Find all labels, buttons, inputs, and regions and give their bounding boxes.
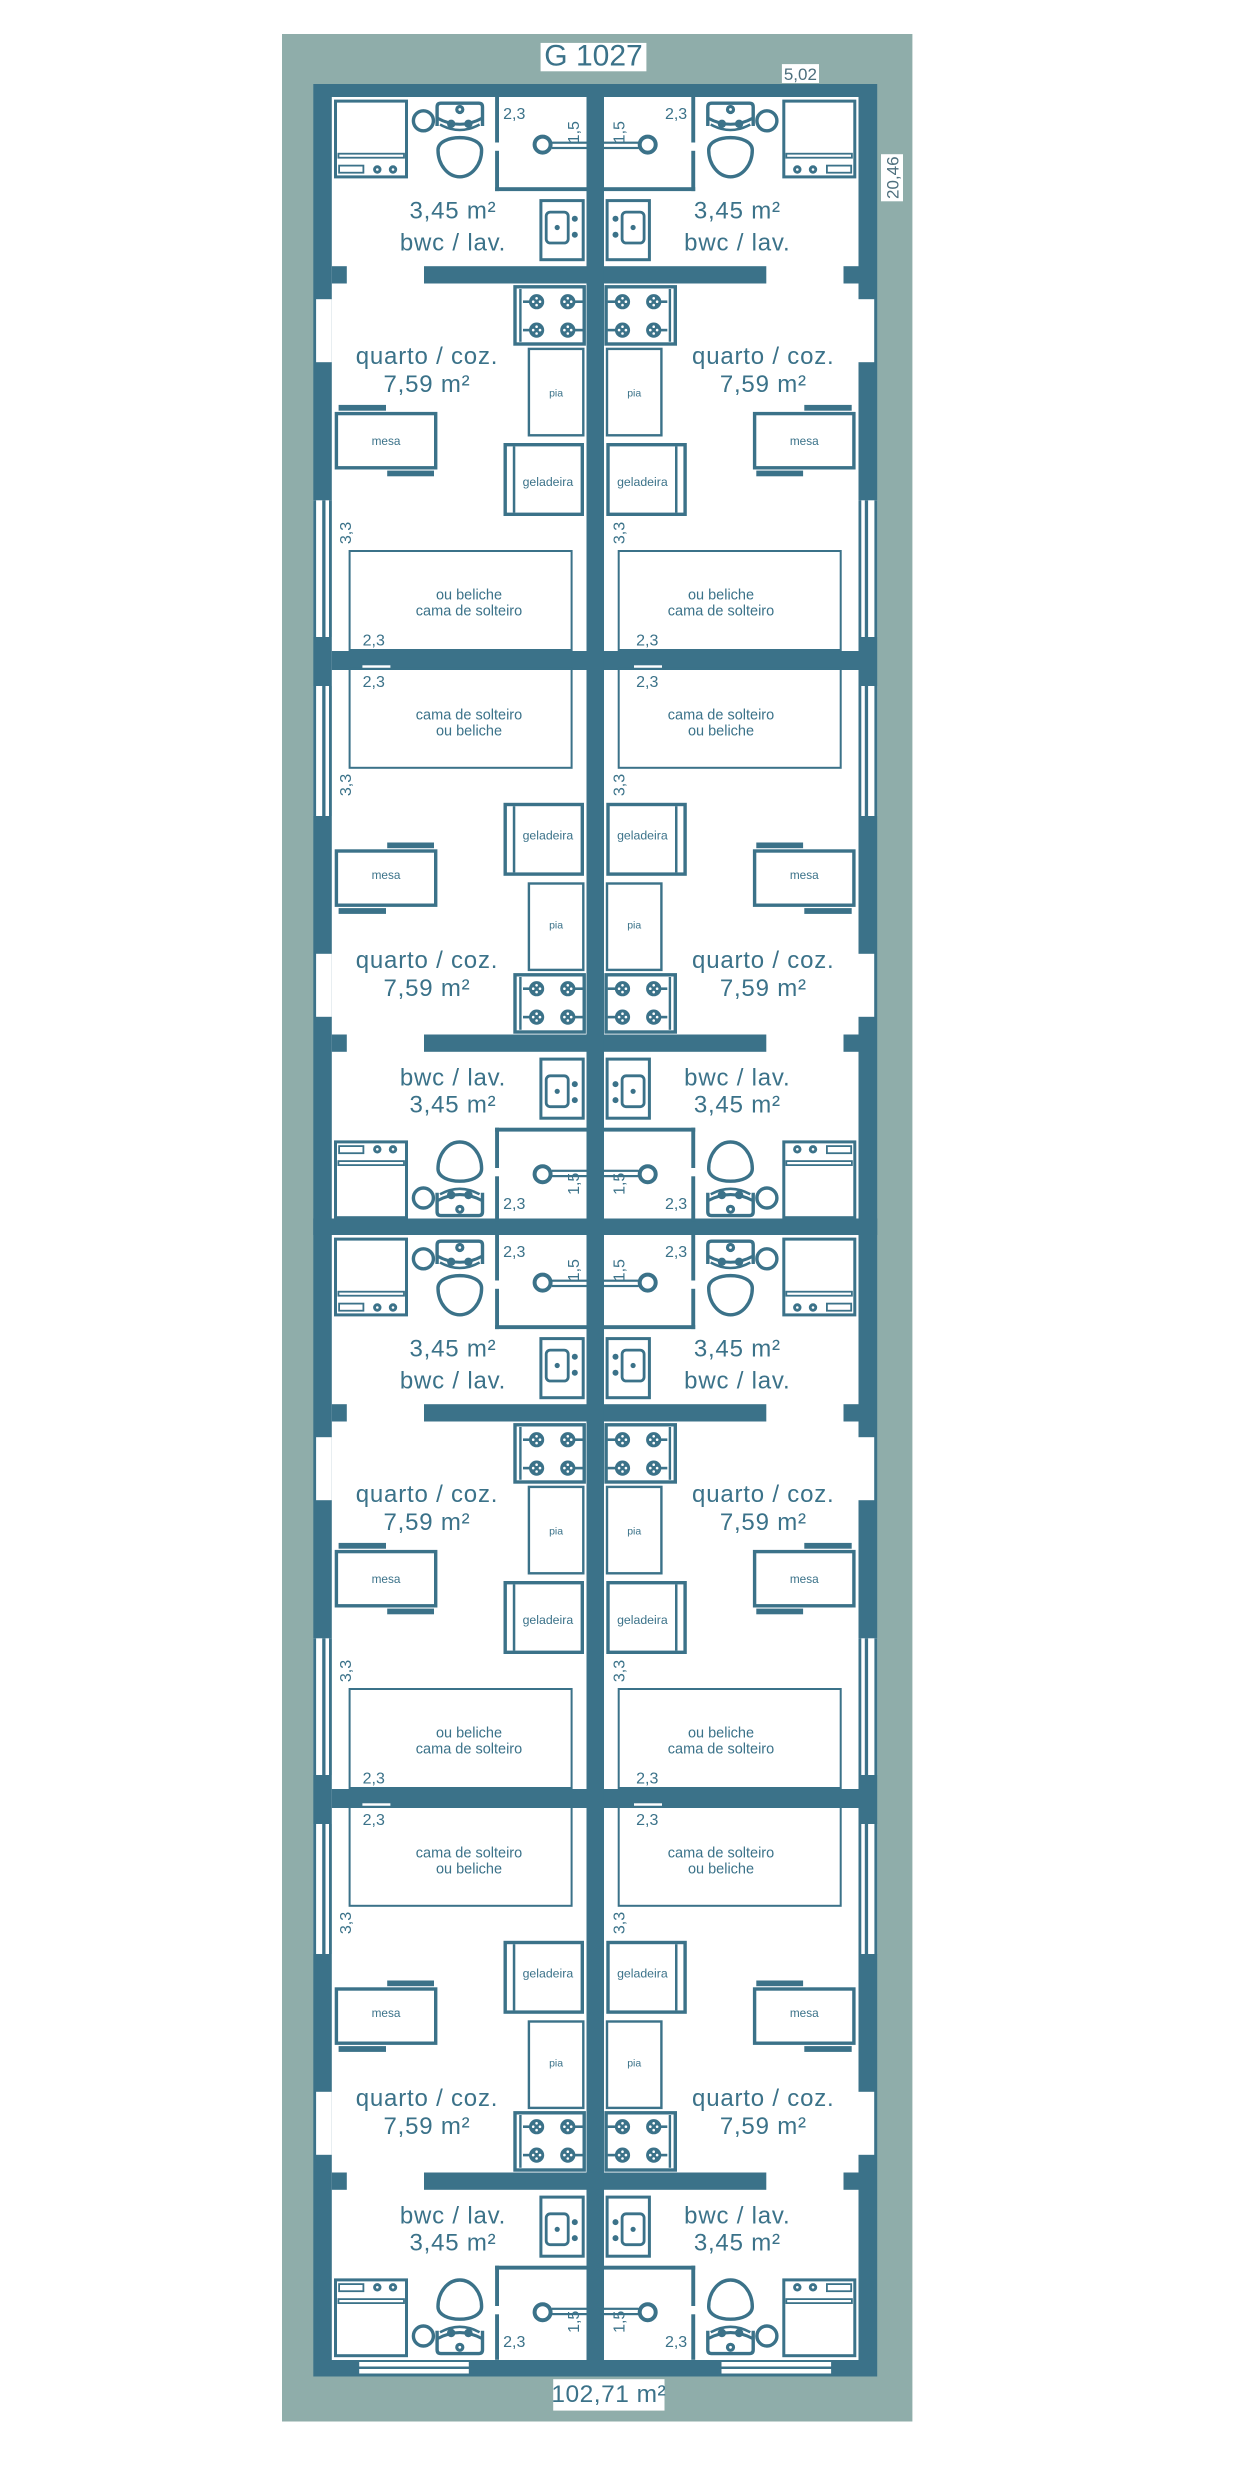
svg-text:102,71 m²: 102,71 m² [551, 2381, 666, 2408]
svg-text:2,3: 2,3 [503, 106, 525, 123]
svg-text:quarto / coz.: quarto / coz. [692, 947, 834, 974]
svg-text:cama de solteiro: cama de solteiro [416, 1846, 522, 1862]
svg-text:bwc / lav.: bwc / lav. [400, 230, 506, 257]
svg-text:2,3: 2,3 [636, 633, 658, 650]
svg-text:pia: pia [627, 2058, 641, 2070]
svg-text:3,45 m²: 3,45 m² [694, 2230, 781, 2257]
svg-text:ou beliche: ou beliche [688, 724, 754, 740]
svg-text:geladeira: geladeira [617, 1967, 668, 1981]
svg-text:7,59 m²: 7,59 m² [720, 371, 807, 398]
svg-text:geladeira: geladeira [523, 829, 574, 843]
svg-text:bwc / lav.: bwc / lav. [684, 2203, 790, 2230]
svg-text:2,3: 2,3 [363, 1771, 385, 1788]
svg-text:mesa: mesa [790, 868, 819, 882]
svg-text:quarto / coz.: quarto / coz. [692, 343, 834, 370]
svg-text:3,3: 3,3 [338, 522, 355, 544]
svg-text:3,45 m²: 3,45 m² [410, 2230, 497, 2257]
svg-text:3,45 m²: 3,45 m² [410, 1092, 497, 1119]
svg-text:ou beliche: ou beliche [688, 588, 754, 604]
svg-text:cama de solteiro: cama de solteiro [668, 708, 774, 724]
svg-text:quarto / coz.: quarto / coz. [356, 947, 498, 974]
svg-text:2,3: 2,3 [503, 1244, 525, 1261]
svg-text:3,3: 3,3 [338, 1660, 355, 1682]
svg-text:quarto / coz.: quarto / coz. [356, 2085, 498, 2112]
svg-text:3,3: 3,3 [611, 774, 628, 796]
svg-text:bwc / lav.: bwc / lav. [400, 2203, 506, 2230]
svg-text:geladeira: geladeira [523, 1613, 574, 1627]
svg-text:3,45 m²: 3,45 m² [694, 1092, 781, 1119]
svg-text:2,3: 2,3 [665, 1244, 687, 1261]
svg-text:cama de solteiro: cama de solteiro [416, 1742, 522, 1758]
svg-text:bwc / lav.: bwc / lav. [400, 1065, 506, 1092]
svg-text:mesa: mesa [372, 1572, 401, 1586]
svg-text:quarto / coz.: quarto / coz. [356, 1481, 498, 1508]
svg-text:7,59 m²: 7,59 m² [384, 1509, 471, 1536]
svg-text:2,3: 2,3 [503, 1196, 525, 1213]
svg-text:2,3: 2,3 [636, 674, 658, 691]
svg-text:geladeira: geladeira [617, 475, 668, 489]
svg-text:5,02: 5,02 [784, 65, 817, 84]
svg-text:7,59 m²: 7,59 m² [720, 975, 807, 1002]
svg-text:1,5: 1,5 [566, 1173, 583, 1195]
svg-text:7,59 m²: 7,59 m² [720, 2113, 807, 2140]
svg-text:ou beliche: ou beliche [436, 724, 502, 740]
svg-text:pia: pia [549, 2058, 563, 2070]
svg-text:3,3: 3,3 [338, 1912, 355, 1934]
svg-text:7,59 m²: 7,59 m² [720, 1509, 807, 1536]
svg-text:geladeira: geladeira [617, 1613, 668, 1627]
svg-text:1,5: 1,5 [612, 121, 629, 143]
svg-text:1,5: 1,5 [612, 2311, 629, 2333]
svg-text:pia: pia [627, 1526, 641, 1538]
svg-text:mesa: mesa [790, 434, 819, 448]
svg-text:2,3: 2,3 [363, 1812, 385, 1829]
svg-text:1,5: 1,5 [566, 121, 583, 143]
svg-text:3,3: 3,3 [611, 522, 628, 544]
svg-text:ou beliche: ou beliche [436, 588, 502, 604]
svg-text:pia: pia [549, 920, 563, 932]
svg-text:7,59 m²: 7,59 m² [384, 371, 471, 398]
svg-text:2,3: 2,3 [665, 1196, 687, 1213]
svg-text:pia: pia [549, 1526, 563, 1538]
svg-text:cama de solteiro: cama de solteiro [416, 708, 522, 724]
svg-text:7,59 m²: 7,59 m² [384, 2113, 471, 2140]
svg-text:2,3: 2,3 [636, 1771, 658, 1788]
svg-text:7,59 m²: 7,59 m² [384, 975, 471, 1002]
svg-text:cama de solteiro: cama de solteiro [668, 1846, 774, 1862]
svg-text:cama de solteiro: cama de solteiro [668, 604, 774, 620]
svg-text:3,45 m²: 3,45 m² [694, 1336, 781, 1363]
svg-text:2,3: 2,3 [665, 106, 687, 123]
svg-text:pia: pia [627, 388, 641, 400]
svg-text:cama de solteiro: cama de solteiro [416, 604, 522, 620]
svg-text:bwc / lav.: bwc / lav. [400, 1368, 506, 1395]
svg-text:geladeira: geladeira [523, 1967, 574, 1981]
svg-text:2,3: 2,3 [636, 1812, 658, 1829]
svg-text:mesa: mesa [790, 1572, 819, 1586]
svg-text:mesa: mesa [372, 868, 401, 882]
svg-text:2,3: 2,3 [363, 674, 385, 691]
svg-text:2,3: 2,3 [363, 633, 385, 650]
svg-text:20,46: 20,46 [883, 156, 902, 199]
svg-text:3,45 m²: 3,45 m² [410, 198, 497, 225]
svg-text:quarto / coz.: quarto / coz. [692, 1481, 834, 1508]
svg-text:1,5: 1,5 [566, 2311, 583, 2333]
svg-text:geladeira: geladeira [523, 475, 574, 489]
svg-text:3,3: 3,3 [338, 774, 355, 796]
svg-text:ou beliche: ou beliche [436, 1862, 502, 1878]
svg-text:3,3: 3,3 [611, 1912, 628, 1934]
svg-text:1,5: 1,5 [566, 1259, 583, 1281]
svg-text:mesa: mesa [372, 2006, 401, 2020]
svg-text:ou beliche: ou beliche [436, 1726, 502, 1742]
svg-text:1,5: 1,5 [612, 1259, 629, 1281]
svg-text:1,5: 1,5 [612, 1173, 629, 1195]
svg-text:mesa: mesa [372, 434, 401, 448]
svg-text:quarto / coz.: quarto / coz. [356, 343, 498, 370]
svg-text:3,45 m²: 3,45 m² [410, 1336, 497, 1363]
svg-text:bwc / lav.: bwc / lav. [684, 1368, 790, 1395]
svg-text:ou beliche: ou beliche [688, 1862, 754, 1878]
svg-text:G 1027: G 1027 [544, 40, 642, 73]
svg-text:2,3: 2,3 [503, 2334, 525, 2351]
svg-text:bwc / lav.: bwc / lav. [684, 230, 790, 257]
svg-text:quarto / coz.: quarto / coz. [692, 2085, 834, 2112]
svg-text:ou beliche: ou beliche [688, 1726, 754, 1742]
svg-text:cama de solteiro: cama de solteiro [668, 1742, 774, 1758]
svg-text:pia: pia [627, 920, 641, 932]
svg-text:3,45 m²: 3,45 m² [694, 198, 781, 225]
svg-text:3,3: 3,3 [611, 1660, 628, 1682]
svg-text:bwc / lav.: bwc / lav. [684, 1065, 790, 1092]
svg-text:pia: pia [549, 388, 563, 400]
svg-text:geladeira: geladeira [617, 829, 668, 843]
svg-text:2,3: 2,3 [665, 2334, 687, 2351]
svg-text:mesa: mesa [790, 2006, 819, 2020]
